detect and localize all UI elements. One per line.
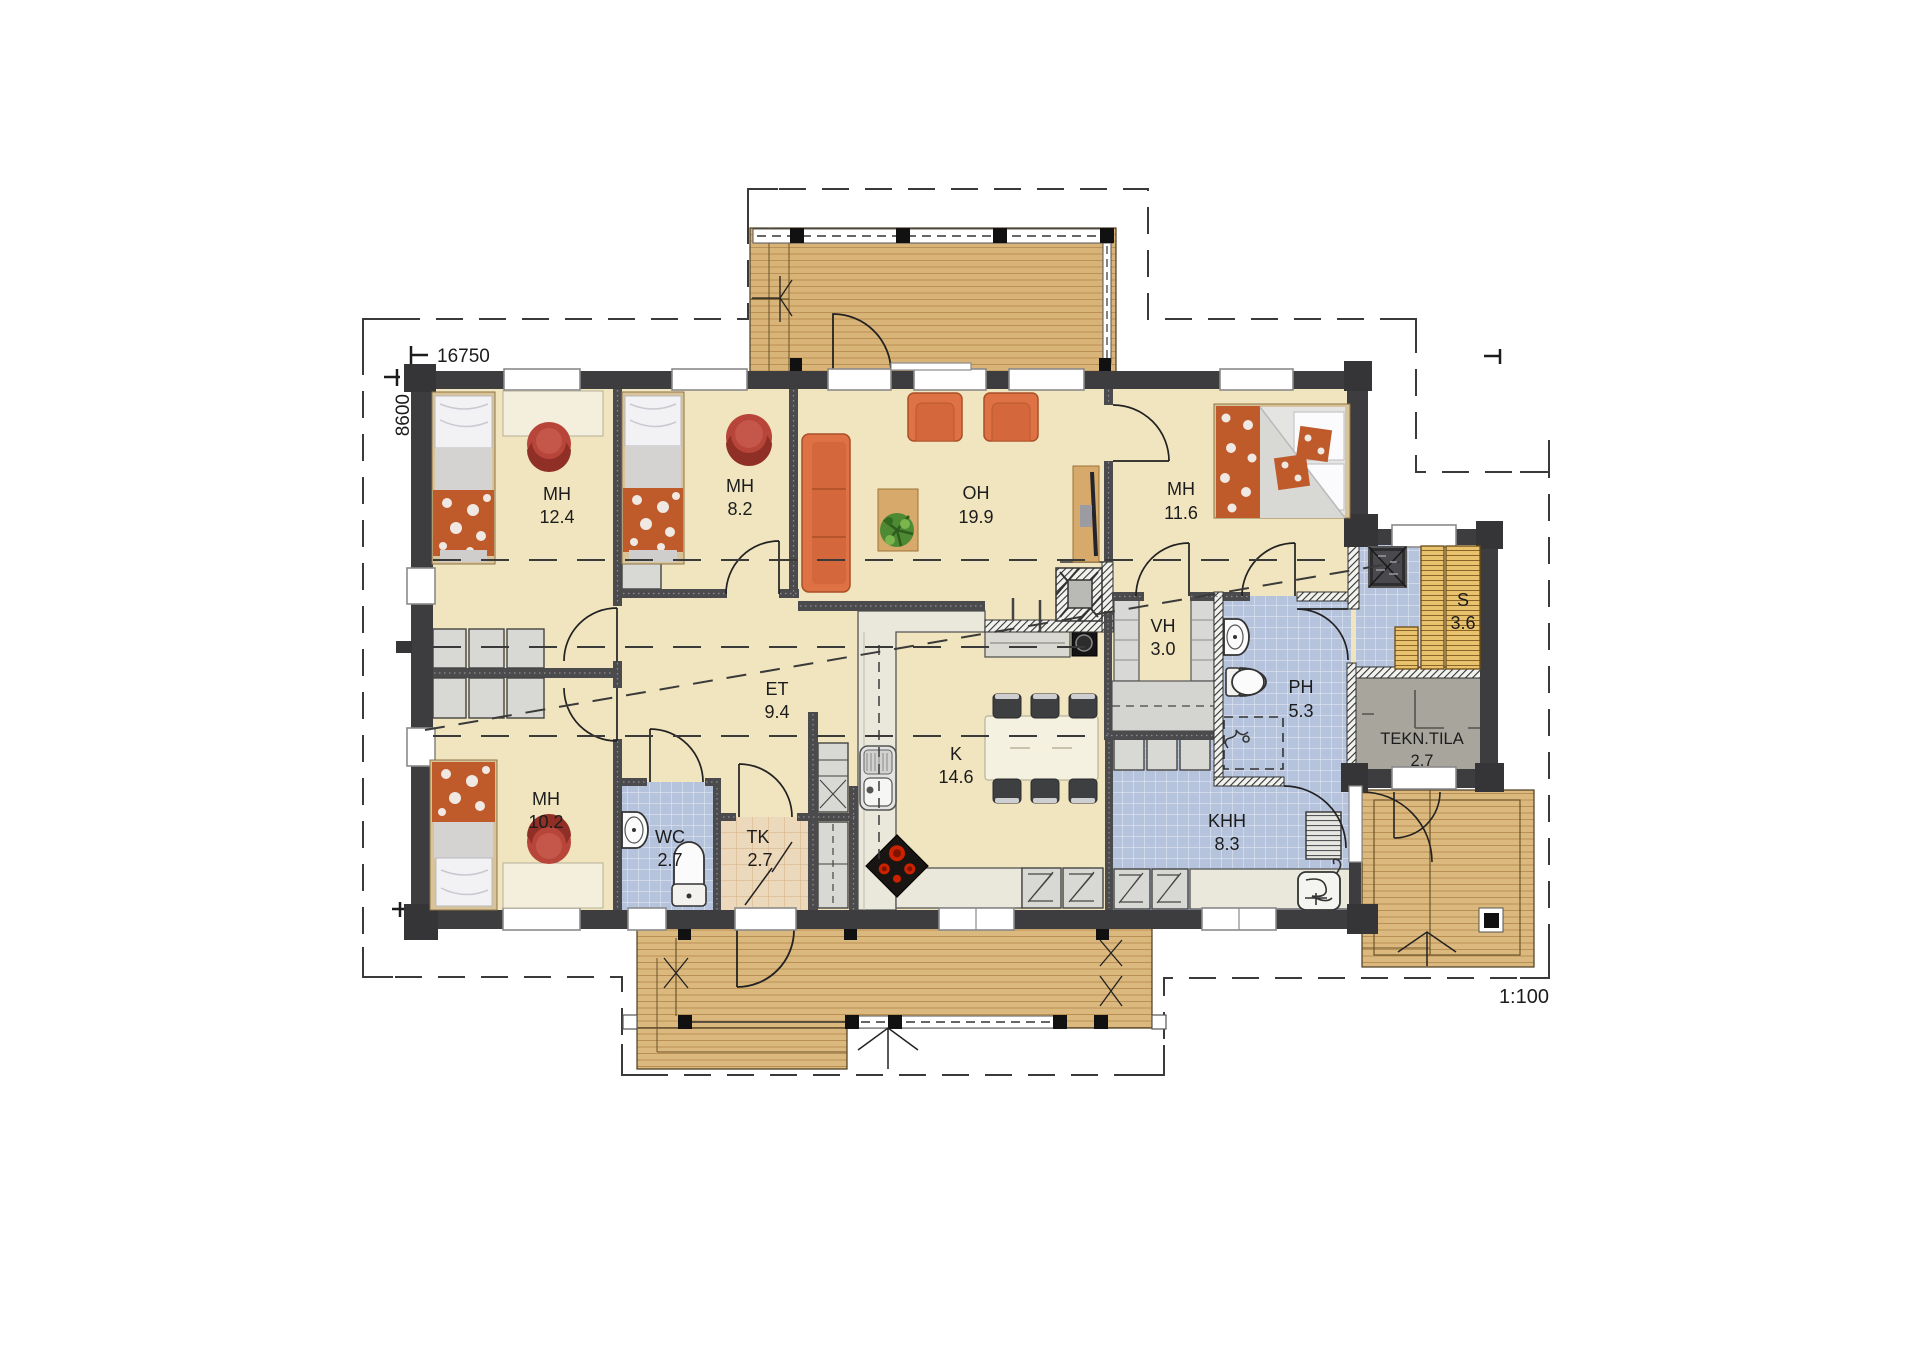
svg-text:9.4: 9.4 bbox=[764, 702, 789, 722]
svg-text:19.9: 19.9 bbox=[958, 507, 993, 527]
svg-text:MH: MH bbox=[532, 789, 560, 809]
svg-text:2.7: 2.7 bbox=[747, 850, 772, 870]
svg-text:MH: MH bbox=[543, 484, 571, 504]
svg-text:KHH: KHH bbox=[1208, 811, 1246, 831]
svg-text:VH: VH bbox=[1150, 616, 1175, 636]
svg-text:2.7: 2.7 bbox=[657, 850, 682, 870]
svg-text:PH: PH bbox=[1288, 677, 1313, 697]
svg-text:11.6: 11.6 bbox=[1164, 503, 1198, 523]
svg-text:TEKN.TILA: TEKN.TILA bbox=[1380, 730, 1463, 748]
svg-text:WC: WC bbox=[655, 827, 685, 847]
svg-text:5.3: 5.3 bbox=[1288, 701, 1313, 721]
svg-text:14.6: 14.6 bbox=[938, 767, 973, 787]
svg-text:MH: MH bbox=[1167, 479, 1195, 499]
svg-text:ET: ET bbox=[765, 679, 788, 699]
svg-text:1:100: 1:100 bbox=[1499, 986, 1549, 1008]
svg-text:8.3: 8.3 bbox=[1214, 834, 1239, 854]
svg-text:OH: OH bbox=[963, 483, 990, 503]
svg-text:3.6: 3.6 bbox=[1450, 613, 1475, 633]
svg-text:2.7: 2.7 bbox=[1411, 752, 1434, 770]
svg-text:8600: 8600 bbox=[393, 394, 414, 436]
svg-text:3.0: 3.0 bbox=[1150, 639, 1175, 659]
svg-text:K: K bbox=[950, 744, 962, 764]
svg-text:MH: MH bbox=[726, 476, 754, 496]
svg-text:S: S bbox=[1457, 590, 1469, 610]
svg-text:10.2: 10.2 bbox=[528, 812, 563, 832]
svg-text:8.2: 8.2 bbox=[727, 499, 752, 519]
svg-text:TK: TK bbox=[746, 827, 769, 847]
svg-text:12.4: 12.4 bbox=[539, 507, 574, 527]
svg-text:16750: 16750 bbox=[437, 346, 490, 367]
